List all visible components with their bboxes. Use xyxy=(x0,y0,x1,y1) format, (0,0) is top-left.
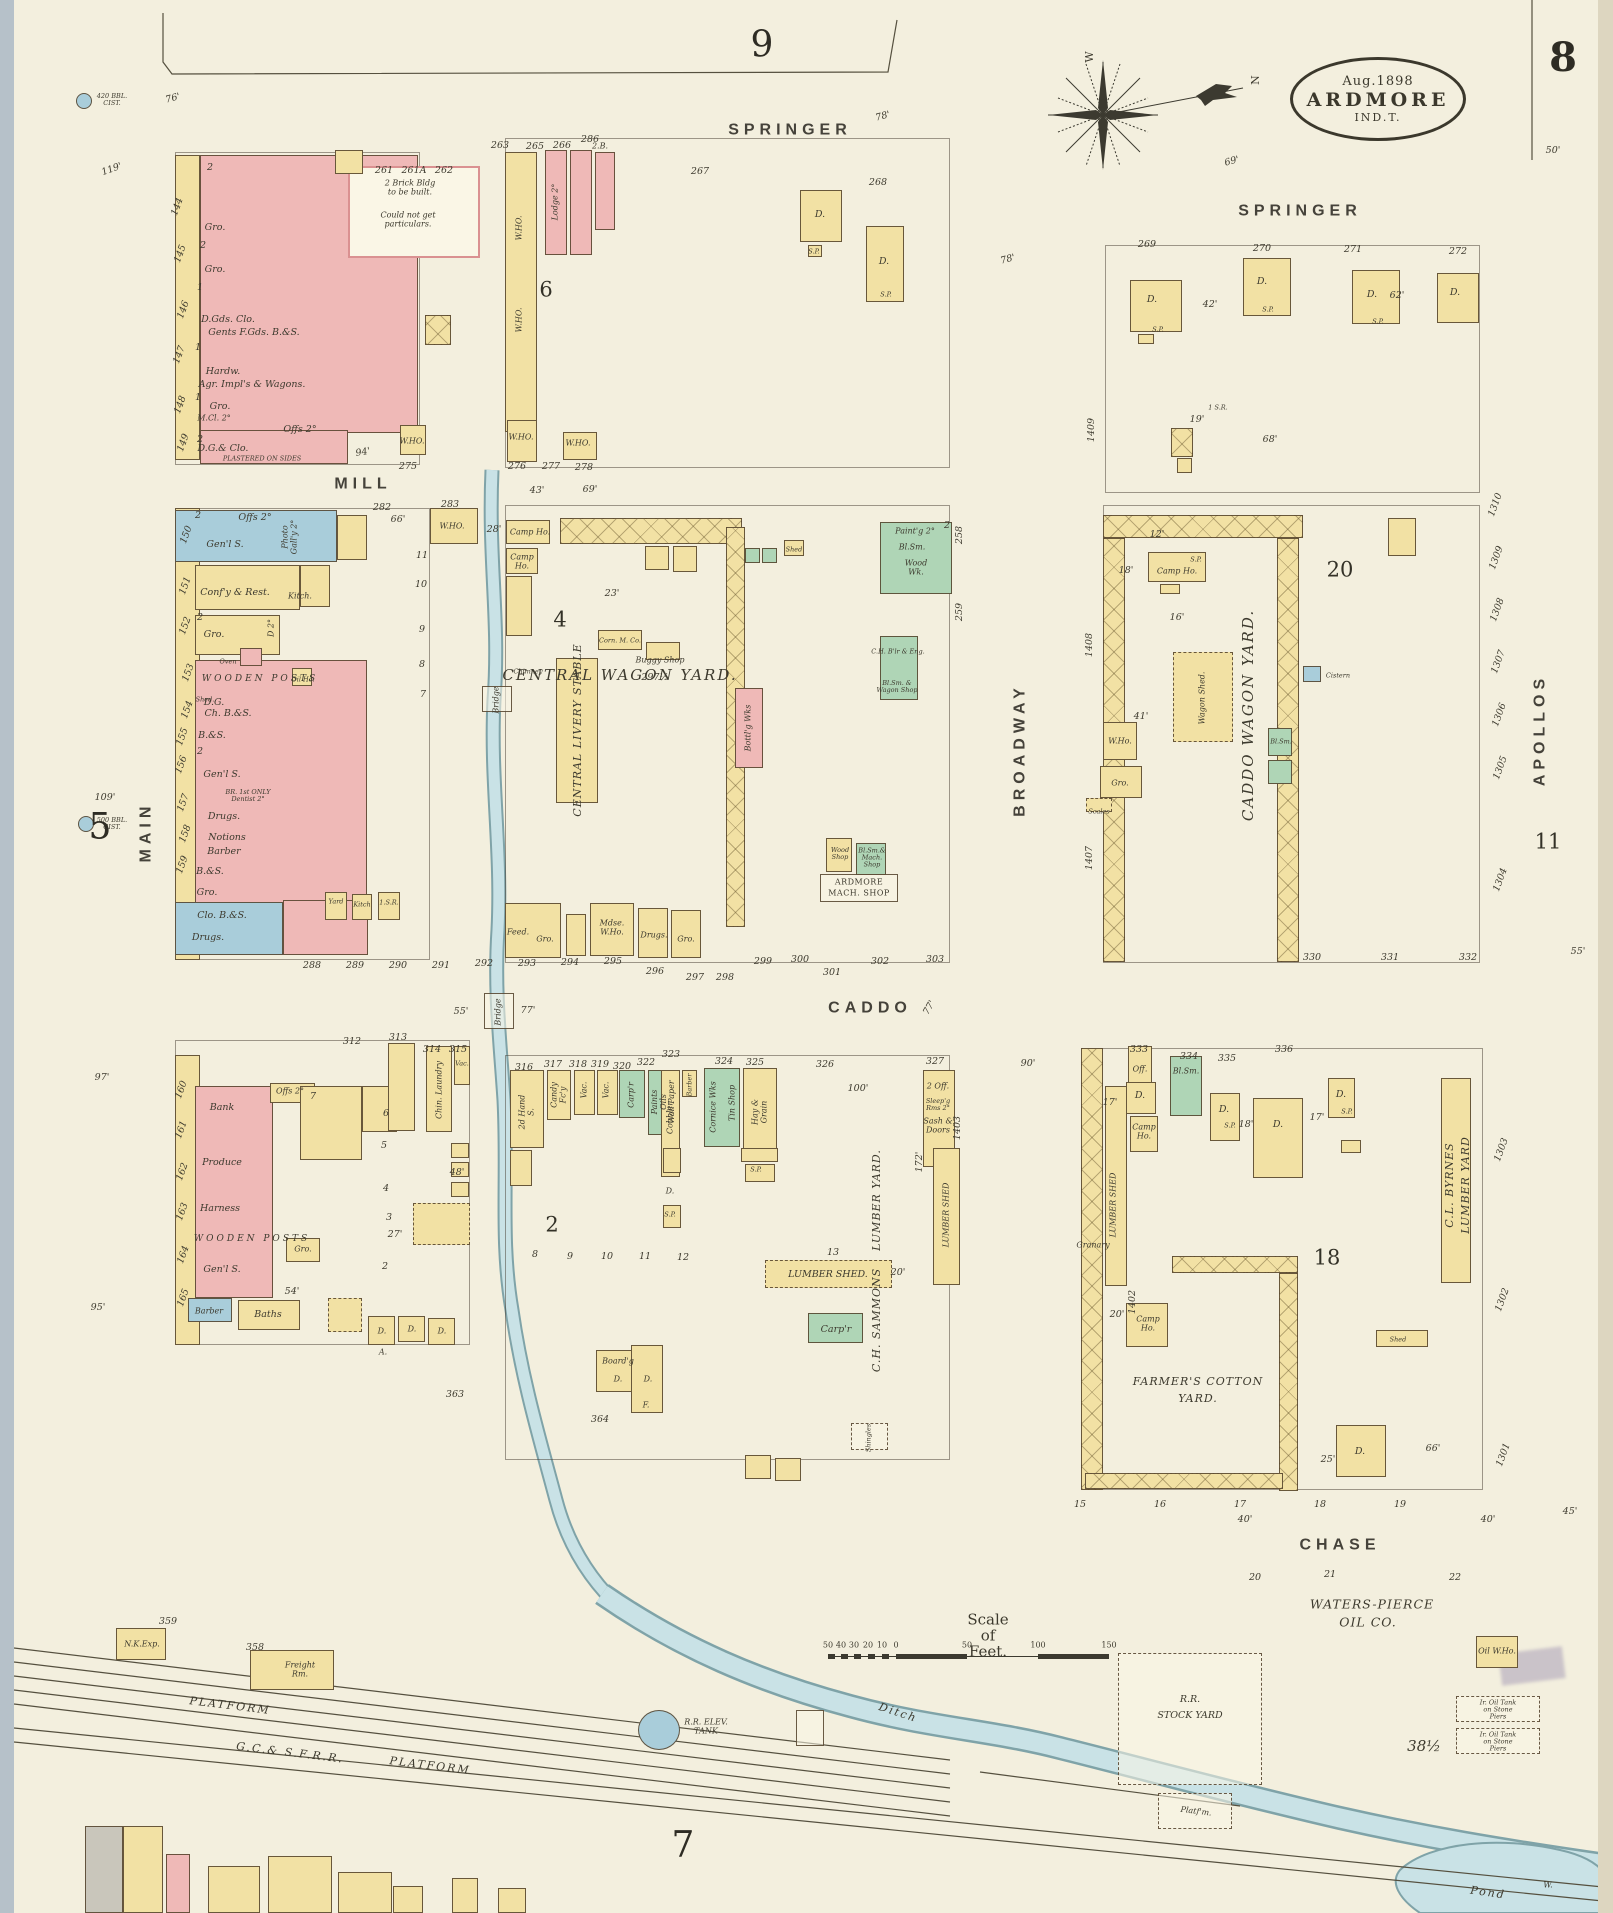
building xyxy=(175,155,200,460)
building xyxy=(300,565,330,607)
building xyxy=(765,1260,892,1288)
building xyxy=(933,1148,960,1285)
building xyxy=(1177,458,1192,473)
building xyxy=(1243,258,1291,316)
building xyxy=(1352,270,1400,324)
scan-edge-strip xyxy=(0,0,14,1913)
sanborn-map-sheet: 8 Aug.1898 ARDMORE IND.T. Scale of Feet.… xyxy=(0,0,1613,1913)
building xyxy=(195,565,300,610)
building xyxy=(762,548,777,563)
building xyxy=(286,1238,320,1262)
building xyxy=(348,166,480,258)
building xyxy=(545,150,567,255)
building xyxy=(556,658,598,803)
building xyxy=(188,1298,232,1322)
building xyxy=(1341,1140,1361,1153)
building xyxy=(595,152,615,230)
building xyxy=(505,903,561,958)
building xyxy=(598,630,642,650)
building xyxy=(1126,1303,1168,1347)
building xyxy=(85,1826,123,1913)
building xyxy=(1456,1728,1540,1754)
building xyxy=(175,902,283,955)
building xyxy=(570,150,592,255)
building xyxy=(1103,722,1137,760)
building xyxy=(800,190,842,242)
building xyxy=(631,1345,663,1413)
building xyxy=(735,688,763,768)
publisher-stamp: Aug.1898 ARDMORE IND.T. xyxy=(1290,57,1466,141)
building xyxy=(574,1070,595,1115)
building xyxy=(1086,798,1112,812)
building xyxy=(510,1070,544,1148)
building xyxy=(547,1070,571,1120)
building xyxy=(1105,1086,1127,1286)
building xyxy=(745,548,760,563)
building xyxy=(208,1866,260,1913)
building xyxy=(563,432,597,460)
building xyxy=(268,1856,332,1913)
building xyxy=(560,518,742,544)
building xyxy=(597,1070,618,1115)
cistern xyxy=(78,816,94,832)
building xyxy=(775,1458,801,1481)
building xyxy=(400,425,426,455)
building xyxy=(646,642,680,660)
building xyxy=(1100,766,1142,798)
building xyxy=(1388,518,1416,556)
building xyxy=(425,315,451,345)
building xyxy=(741,1148,778,1162)
building xyxy=(745,1164,775,1182)
building xyxy=(1328,1078,1355,1118)
building xyxy=(1085,1473,1283,1489)
building xyxy=(1268,760,1292,784)
building xyxy=(673,546,697,572)
building xyxy=(506,520,550,544)
building xyxy=(866,226,904,302)
building xyxy=(1081,1048,1103,1490)
building xyxy=(413,1203,470,1245)
compass-rose xyxy=(1048,60,1243,170)
building xyxy=(337,515,367,560)
building xyxy=(851,1423,888,1450)
building xyxy=(590,903,634,956)
building xyxy=(1103,515,1303,538)
building xyxy=(682,1070,697,1097)
building xyxy=(1170,1056,1202,1116)
building xyxy=(505,152,537,432)
building xyxy=(123,1826,163,1913)
building xyxy=(1130,280,1182,332)
building xyxy=(645,546,669,570)
building xyxy=(826,838,852,872)
building xyxy=(166,1854,190,1913)
building xyxy=(704,1068,740,1147)
sheet-number: 8 xyxy=(1528,34,1598,81)
building xyxy=(195,1086,273,1298)
building xyxy=(250,1650,334,1690)
building xyxy=(506,576,532,636)
building xyxy=(238,1300,300,1330)
building xyxy=(856,843,886,875)
building xyxy=(1253,1098,1303,1178)
building xyxy=(1148,552,1206,582)
bridge xyxy=(482,686,512,712)
building xyxy=(200,430,348,464)
building xyxy=(1130,1116,1158,1152)
building xyxy=(1456,1696,1540,1722)
cistern xyxy=(76,93,92,109)
building xyxy=(451,1182,469,1197)
building xyxy=(292,668,312,686)
building xyxy=(498,1888,526,1913)
building xyxy=(452,1878,478,1913)
bridge xyxy=(484,993,514,1029)
building xyxy=(175,510,337,562)
building xyxy=(1476,1636,1518,1668)
building xyxy=(335,150,363,174)
building xyxy=(1336,1425,1386,1477)
building xyxy=(378,892,400,920)
building xyxy=(328,1298,362,1332)
building xyxy=(808,1313,863,1343)
building xyxy=(352,894,372,920)
building xyxy=(428,1318,455,1345)
building xyxy=(1210,1093,1240,1141)
building xyxy=(1437,273,1479,323)
building xyxy=(1279,1273,1298,1491)
building xyxy=(638,908,668,958)
building xyxy=(745,1455,771,1479)
building xyxy=(663,1148,681,1173)
building xyxy=(451,1143,469,1158)
building xyxy=(566,914,586,956)
building xyxy=(1138,334,1154,344)
building xyxy=(325,892,347,920)
building xyxy=(195,660,367,905)
building xyxy=(1303,666,1321,682)
building xyxy=(671,910,701,958)
building xyxy=(426,1046,452,1132)
stamp-city: ARDMORE xyxy=(1307,89,1450,111)
bridge xyxy=(796,1710,824,1746)
building xyxy=(510,1150,532,1186)
building xyxy=(368,1316,395,1345)
building xyxy=(619,1070,645,1118)
rr-stock-yard xyxy=(1118,1653,1262,1785)
building xyxy=(300,1086,362,1160)
rr-elevator-tank xyxy=(638,1710,680,1750)
compass-bird-arrow xyxy=(1196,84,1237,106)
building xyxy=(1160,584,1180,594)
building xyxy=(784,540,804,556)
building xyxy=(1173,652,1233,742)
stamp-date: Aug.1898 xyxy=(1342,74,1413,89)
building xyxy=(338,1872,392,1913)
building xyxy=(1268,728,1292,756)
scale-bar-line xyxy=(828,1656,1109,1657)
building xyxy=(1376,1330,1428,1347)
building xyxy=(393,1886,423,1913)
building xyxy=(1172,1256,1298,1273)
building xyxy=(1441,1078,1471,1283)
building xyxy=(430,508,478,544)
building xyxy=(451,1162,469,1177)
page-edge-strip xyxy=(1598,0,1613,1913)
building xyxy=(506,548,538,574)
building xyxy=(398,1316,425,1342)
building xyxy=(880,636,918,700)
building xyxy=(663,1205,681,1228)
building xyxy=(880,522,952,594)
building xyxy=(1158,1793,1232,1829)
building xyxy=(808,245,822,257)
building xyxy=(240,648,262,666)
stamp-territory: IND.T. xyxy=(1354,111,1401,124)
building xyxy=(507,420,537,462)
building xyxy=(388,1043,415,1131)
building xyxy=(195,615,280,655)
building xyxy=(1171,428,1193,457)
building xyxy=(454,1046,470,1085)
building xyxy=(1126,1082,1156,1114)
building xyxy=(820,874,898,902)
building xyxy=(116,1628,166,1660)
